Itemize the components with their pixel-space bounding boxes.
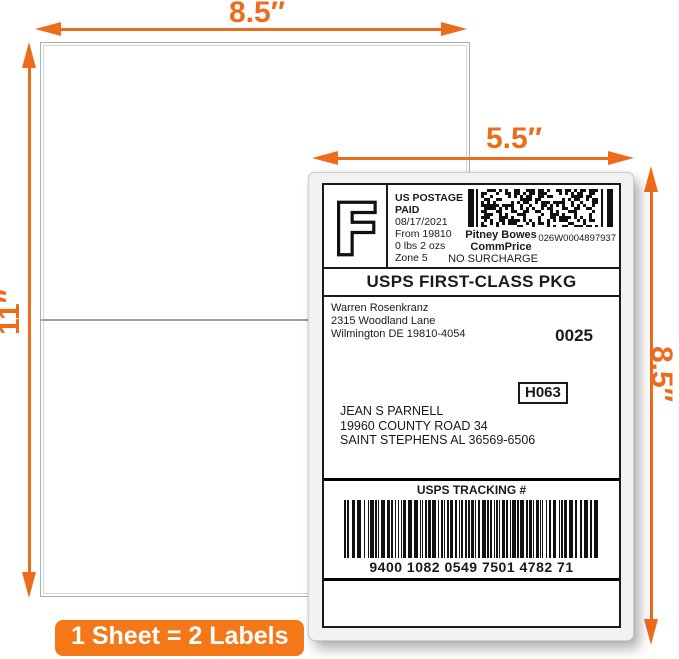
batch-number: 0025: [555, 326, 593, 346]
sender-name: Warren Rosenkranz: [331, 302, 466, 315]
meter-number: 026W0004897937: [538, 233, 616, 244]
shipping-label: F US POSTAGE PAID 08/17/2021 From 19810 …: [322, 183, 621, 628]
sender-city: Wilmington DE 19810-4054: [331, 328, 466, 341]
surcharge-note: NO SURCHARGE: [433, 253, 553, 265]
sheet-count-badge: 1 Sheet = 2 Labels: [55, 620, 304, 656]
arrow-right-head-icon: [441, 22, 467, 36]
service-class-banner: USPS FIRST-CLASS PKG: [324, 269, 619, 297]
arrow-right-head-icon: [608, 151, 634, 165]
sender-address: Warren Rosenkranz 2315 Woodland Lane Wil…: [331, 302, 466, 341]
meter-vendor: Pitney Bowes CommPrice: [451, 229, 551, 253]
postage-meter-2d-barcode: [468, 189, 613, 227]
route-code: H063: [518, 382, 568, 404]
label-height-arrow-icon: [644, 166, 658, 645]
sheet-width-dimension: 8.5″: [229, 0, 285, 30]
label-width-arrow-icon: [312, 151, 634, 165]
recipient-name: JEAN S PARNELL: [340, 404, 535, 419]
arrow-shaft: [650, 186, 653, 625]
arrow-bottom-head-icon: [22, 572, 36, 598]
postage-line: US POSTAGE: [395, 192, 463, 204]
arrow-bottom-head-icon: [644, 619, 658, 645]
sender-street: 2315 Woodland Lane: [331, 315, 466, 328]
recipient-city: SAINT STEPHENS AL 36569-6506: [340, 433, 535, 448]
arrow-shaft: [332, 157, 614, 160]
shipping-label-card: F US POSTAGE PAID 08/17/2021 From 19810 …: [308, 172, 634, 641]
vendor-line: CommPrice: [451, 241, 551, 253]
fim-letter-icon: F: [330, 189, 380, 263]
recipient-address: JEAN S PARNELL 19960 COUNTY ROAD 34 SAIN…: [340, 404, 535, 448]
fim-cell: F: [324, 185, 388, 267]
label-footer-blank: [324, 581, 619, 626]
sheet-height-dimension: 11″: [0, 289, 27, 335]
postage-date: 08/17/2021: [395, 216, 463, 228]
postage-details: US POSTAGE PAID 08/17/2021 From 19810 0 …: [388, 185, 619, 267]
label-width-dimension: 5.5″: [486, 122, 542, 156]
postage-header-row: F US POSTAGE PAID 08/17/2021 From 19810 …: [324, 185, 619, 269]
tracking-number: 9400 1082 0549 7501 4782 71: [324, 559, 619, 575]
tracking-section: USPS TRACKING # 9400 1082 0549 7501 4782…: [324, 478, 619, 581]
arrow-shaft: [28, 62, 31, 578]
tracking-title: USPS TRACKING #: [324, 483, 619, 497]
vendor-line: Pitney Bowes: [451, 229, 551, 241]
product-infographic: 8.5″ 11″ 5.5″ 8.5″ F: [0, 0, 679, 659]
address-section: Warren Rosenkranz 2315 Woodland Lane Wil…: [324, 297, 619, 478]
postage-line: PAID: [395, 204, 463, 216]
tracking-barcode: [344, 500, 600, 558]
recipient-street: 19960 COUNTY ROAD 34: [340, 419, 535, 434]
svg-text:F: F: [332, 189, 380, 263]
label-height-dimension: 8.5″: [644, 346, 678, 402]
